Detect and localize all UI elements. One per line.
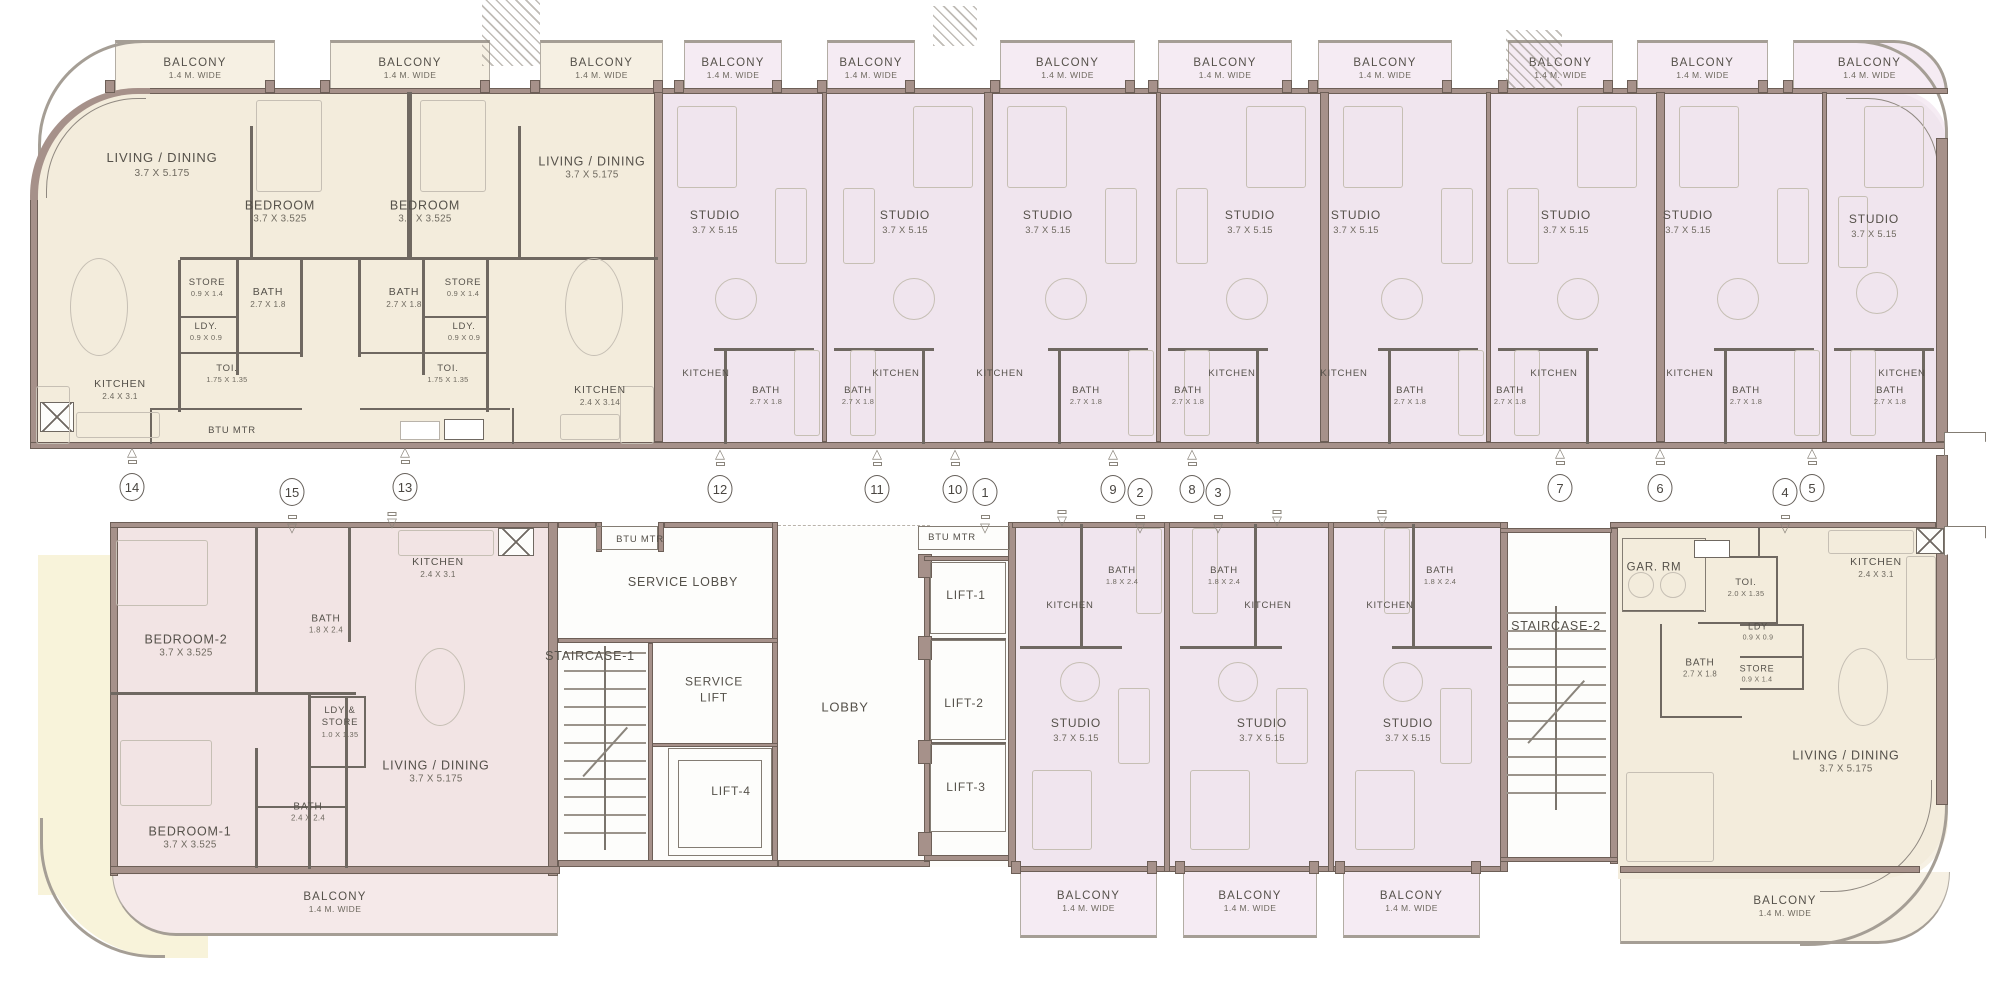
furniture-item bbox=[1032, 770, 1092, 850]
wall-segment bbox=[1008, 522, 1016, 867]
unit-marker: △ 11 ▽ bbox=[865, 475, 890, 503]
furniture-item bbox=[715, 278, 757, 320]
room-dims: 2.7 X 1.8 bbox=[386, 300, 421, 311]
room-dims: 2.4 X 3.1 bbox=[1850, 570, 1902, 581]
room-label: BATH 2.7 X 1.8 bbox=[842, 385, 874, 407]
wall-segment bbox=[1620, 866, 1920, 873]
balcony: BALCONY 1.4 M. WIDE bbox=[1158, 40, 1292, 94]
room-name: SERVICE bbox=[685, 674, 743, 690]
entry-arrow: ▽ bbox=[1271, 510, 1283, 530]
unit-number: 10 bbox=[943, 475, 968, 503]
furniture-item bbox=[1577, 106, 1637, 188]
partition-line bbox=[1758, 527, 1760, 557]
room-dims: 0.9 X 0.9 bbox=[448, 333, 480, 343]
room-name: STAIRCASE-2 bbox=[1511, 618, 1601, 634]
partition-line bbox=[152, 408, 302, 410]
room-label: LOBBY bbox=[821, 700, 868, 717]
room-label: KITCHEN 2.4 X 3.1 bbox=[1850, 556, 1902, 580]
room-name: BATH bbox=[1730, 385, 1762, 397]
room-dims: 2.7 X 1.8 bbox=[1683, 669, 1717, 679]
room-label: BATH 2.7 X 1.8 bbox=[1070, 385, 1102, 407]
railing-pier bbox=[1282, 80, 1292, 93]
room-name: LIFT-1 bbox=[946, 588, 985, 604]
wall-segment bbox=[110, 866, 560, 874]
room-label: BATH 1.8 X 2.4 bbox=[309, 612, 343, 635]
railing-pier bbox=[817, 80, 827, 93]
room-name: STUDIO bbox=[880, 208, 930, 224]
balcony-label: BALCONY 1.4 M. WIDE bbox=[331, 43, 489, 94]
door-threshold-icon bbox=[951, 462, 960, 466]
balcony-name: BALCONY bbox=[163, 57, 226, 69]
room-name: STUDIO bbox=[1331, 208, 1381, 224]
furniture-item bbox=[1850, 350, 1876, 436]
balcony-label: BALCONY 1.4 M. WIDE bbox=[1319, 43, 1451, 94]
door-threshold-icon bbox=[401, 460, 410, 464]
room-dims: 3.7 X 5.15 bbox=[1383, 732, 1433, 744]
boxed-label bbox=[400, 421, 440, 440]
railing-pier bbox=[1783, 80, 1793, 93]
wall-segment bbox=[1164, 522, 1170, 872]
partition-line bbox=[1412, 524, 1415, 646]
balcony-name: BALCONY bbox=[1218, 890, 1281, 902]
room-name: KITCHEN bbox=[682, 368, 729, 380]
room-label: BTU MTR bbox=[616, 534, 664, 546]
room-dims: 0.9 X 0.9 bbox=[190, 333, 222, 343]
room-label: LIVING / DINING 3.7 X 5.175 bbox=[107, 150, 218, 180]
room-dims: 2.7 X 1.8 bbox=[1394, 397, 1426, 407]
furniture-item bbox=[1717, 278, 1759, 320]
furniture-item bbox=[36, 386, 70, 444]
room-dims: 2.7 X 1.8 bbox=[1874, 397, 1906, 407]
furniture-item bbox=[913, 106, 973, 188]
room-dims: 1.75 X 1.35 bbox=[427, 375, 468, 385]
unit-marker: △ 10 ▽ bbox=[943, 475, 968, 503]
furniture-item bbox=[1440, 688, 1472, 764]
room-label: KITCHEN bbox=[1244, 600, 1291, 612]
room-label: STUDIO 3.7 X 5.15 bbox=[1051, 716, 1101, 744]
unit-number: 4 bbox=[1773, 478, 1798, 506]
balcony-name: BALCONY bbox=[1380, 890, 1443, 902]
room-label: BATH 2.7 X 1.8 bbox=[1874, 385, 1906, 407]
balcony-label: BALCONY 1.4 M. WIDE bbox=[541, 43, 662, 94]
room-dims: 3.7 X 5.15 bbox=[690, 224, 740, 236]
room-label: STORE 0.9 X 1.4 bbox=[445, 277, 482, 299]
room-label: LIVING / DINING 3.7 X 5.175 bbox=[538, 154, 645, 183]
entry-arrow-up-icon: △ bbox=[127, 445, 137, 458]
room-name: KITCHEN bbox=[1666, 368, 1713, 380]
room-name: STUDIO bbox=[1051, 716, 1101, 732]
room-name: LIFT-2 bbox=[944, 696, 983, 712]
room-dims: 2.4 X 3.1 bbox=[94, 392, 146, 403]
partition-line bbox=[178, 260, 181, 412]
room-label: BATH 2.7 X 1.8 bbox=[386, 286, 421, 310]
door-threshold-icon bbox=[1136, 515, 1145, 519]
wall-segment bbox=[652, 743, 778, 747]
railing-pier bbox=[905, 80, 915, 93]
balcony-name: BALCONY bbox=[303, 891, 366, 903]
door-threshold-icon bbox=[1781, 515, 1790, 519]
wall-segment bbox=[654, 92, 663, 442]
railing-pier bbox=[772, 80, 782, 93]
room-label: BTU MTR bbox=[208, 425, 256, 437]
furniture-item bbox=[1906, 556, 1936, 660]
room-label: STORE 0.9 X 1.4 bbox=[1740, 664, 1775, 685]
balcony-label: BALCONY 1.4 M. WIDE bbox=[1344, 868, 1479, 935]
room-name: TOI. bbox=[206, 363, 247, 375]
room-name: LIVING / DINING bbox=[382, 758, 489, 774]
partition-line bbox=[922, 350, 925, 444]
railing-pier bbox=[1308, 80, 1318, 93]
railing-pier bbox=[1147, 861, 1157, 874]
room-name: LDY. bbox=[448, 321, 480, 333]
room-name: KITCHEN bbox=[412, 556, 464, 570]
room-name: BATH bbox=[1106, 565, 1138, 577]
partition-line bbox=[1498, 348, 1598, 351]
room-name: LIVING / DINING bbox=[538, 154, 645, 170]
arrow-down-icon: ▽ bbox=[1377, 514, 1387, 527]
railing-pier bbox=[674, 80, 684, 93]
wall-segment bbox=[1656, 92, 1665, 442]
wall-segment bbox=[1822, 92, 1827, 442]
room-dims: 3.7 X 5.175 bbox=[107, 167, 218, 180]
wall-segment bbox=[1500, 528, 1612, 533]
partition-line bbox=[1256, 350, 1259, 444]
wall-segment bbox=[924, 855, 1014, 861]
balcony-label: BALCONY 1.4 M. WIDE bbox=[1021, 868, 1156, 935]
boxed-label bbox=[444, 419, 484, 440]
outline-box bbox=[678, 760, 762, 848]
unit-number: 3 bbox=[1206, 478, 1231, 506]
room-label: BATH 2.7 X 1.8 bbox=[750, 385, 782, 407]
railing-pier bbox=[1175, 861, 1185, 874]
room-dims: 2.7 X 1.8 bbox=[250, 300, 285, 311]
room-name: BATH bbox=[842, 385, 874, 397]
furniture-item bbox=[76, 412, 160, 438]
partition-line bbox=[308, 695, 311, 869]
entry-arrow-up-icon: △ bbox=[1108, 447, 1118, 460]
balcony-width: 1.4 M. WIDE bbox=[1676, 70, 1729, 80]
room-name: BEDROOM-1 bbox=[149, 824, 232, 840]
room-dims: 3.7 X 5.15 bbox=[1225, 224, 1275, 236]
room-label: KITCHEN bbox=[1320, 368, 1367, 380]
partition-line bbox=[1802, 624, 1804, 690]
entry-arrow-down-icon: ▽ bbox=[980, 521, 990, 534]
room-name: BATH bbox=[1070, 385, 1102, 397]
room-dims: 3.7 X 5.15 bbox=[1023, 224, 1073, 236]
unit-marker: △ 1 ▽ bbox=[973, 478, 998, 506]
wall-segment bbox=[772, 522, 778, 867]
room-name: LDY. bbox=[190, 321, 222, 333]
partition-line bbox=[364, 696, 366, 768]
hatch-area bbox=[933, 6, 977, 46]
room-label: TOI. 1.75 X 1.35 bbox=[427, 363, 468, 385]
unit-number: 15 bbox=[280, 478, 305, 506]
outline-box bbox=[930, 640, 1006, 740]
wall-segment bbox=[664, 522, 778, 528]
partition-line bbox=[1740, 656, 1804, 658]
partition-line bbox=[1254, 524, 1257, 646]
entry-arrow-up-icon: △ bbox=[950, 447, 960, 460]
staircase-steps bbox=[1506, 612, 1606, 810]
unit-marker: △ 3 ▽ bbox=[1206, 478, 1231, 506]
room-label: STUDIO 3.7 X 5.15 bbox=[1541, 208, 1591, 236]
arrow-down-icon: ▽ bbox=[1272, 514, 1282, 527]
wall-segment bbox=[648, 643, 653, 867]
unit-number: 14 bbox=[120, 473, 145, 501]
furniture-item bbox=[1626, 772, 1714, 862]
room-label: BATH 1.8 X 2.4 bbox=[1208, 565, 1240, 587]
arrow-down-icon: ▽ bbox=[387, 516, 397, 529]
partition-line bbox=[1660, 716, 1742, 718]
room-dims: 1.75 X 1.35 bbox=[206, 375, 247, 385]
partition-line bbox=[348, 527, 351, 642]
partition-line bbox=[1168, 348, 1268, 351]
room-label: BEDROOM 3.7 X 3.525 bbox=[245, 198, 315, 227]
room-label: KITCHEN bbox=[1530, 368, 1577, 380]
wall-segment bbox=[778, 860, 930, 867]
wall-segment bbox=[1012, 522, 1504, 528]
arrow-down-icon: ▽ bbox=[1057, 514, 1067, 527]
room-name: KITCHEN bbox=[1366, 600, 1413, 612]
balcony: BALCONY 1.4 M. WIDE bbox=[112, 872, 558, 936]
partition-line bbox=[1776, 556, 1778, 624]
room-label: GAR. RM bbox=[1627, 561, 1682, 576]
balcony-name: BALCONY bbox=[570, 57, 633, 69]
entry-arrow: ▽ bbox=[386, 512, 398, 532]
room-name: LOBBY bbox=[821, 700, 868, 717]
railing-pier bbox=[265, 80, 275, 93]
room-dims: 3.7 X 5.15 bbox=[1237, 732, 1287, 744]
unit-marker: △ 2 ▽ bbox=[1128, 478, 1153, 506]
entry-arrow-down-icon: ▽ bbox=[287, 521, 297, 534]
room-label: KITCHEN 2.4 X 3.1 bbox=[94, 378, 146, 402]
room-label: TOI. 1.75 X 1.35 bbox=[206, 363, 247, 385]
balcony: BALCONY 1.4 M. WIDE bbox=[540, 40, 663, 94]
balcony: BALCONY 1.4 M. WIDE bbox=[1183, 868, 1317, 938]
balcony-width: 1.4 M. WIDE bbox=[707, 70, 760, 80]
partition-line bbox=[1724, 350, 1727, 444]
furniture-item bbox=[1343, 106, 1403, 188]
door-threshold-icon bbox=[1188, 462, 1197, 466]
facade-fin bbox=[1944, 526, 1986, 556]
room-dims: 0.9 X 1.4 bbox=[189, 289, 226, 299]
entry-arrow-up-icon: △ bbox=[1187, 447, 1197, 460]
room-label: LIFT-1 bbox=[946, 588, 985, 604]
room-dims: 3.7 X 5.15 bbox=[880, 224, 930, 236]
room-label: STORE 0.9 X 1.4 bbox=[189, 277, 226, 299]
door-threshold-icon bbox=[1556, 461, 1565, 465]
partition-line bbox=[486, 260, 489, 412]
room-name: KITCHEN bbox=[872, 368, 919, 380]
wall-segment bbox=[558, 860, 778, 867]
furniture-item bbox=[1045, 278, 1087, 320]
furniture-item bbox=[120, 740, 212, 806]
door-threshold-icon bbox=[1214, 515, 1223, 519]
wall-segment bbox=[1156, 92, 1161, 442]
room-name: BTU MTR bbox=[616, 534, 664, 546]
room-name: SERVICE LOBBY bbox=[628, 574, 738, 590]
room-dims: 2.7 X 1.8 bbox=[1730, 397, 1762, 407]
room-dims: 3.7 X 5.15 bbox=[1331, 224, 1381, 236]
room-dims-extra: 1.0 X 1.35 bbox=[322, 730, 359, 740]
furniture-item bbox=[1628, 572, 1654, 598]
balcony-name: BALCONY bbox=[1671, 57, 1734, 69]
unit-number: 5 bbox=[1800, 474, 1825, 502]
room-label: KITCHEN bbox=[1046, 600, 1093, 612]
partition-line bbox=[512, 408, 514, 444]
room-name: KITCHEN bbox=[94, 378, 146, 392]
wall-segment bbox=[918, 832, 932, 856]
room-label: BEDROOM 3.7 X 3.525 bbox=[390, 198, 460, 227]
room-name: TOI. bbox=[427, 363, 468, 375]
room-dims: 2.0 X 1.35 bbox=[1728, 589, 1765, 599]
room-label: LIFT-3 bbox=[946, 780, 985, 796]
furniture-item bbox=[1557, 278, 1599, 320]
partition-line bbox=[310, 766, 366, 768]
unit-marker: △ 12 ▽ bbox=[708, 475, 733, 503]
wall-segment bbox=[984, 92, 993, 442]
partition-line bbox=[1020, 646, 1122, 649]
furniture-item bbox=[1355, 770, 1415, 850]
room-label: TOI. 2.0 X 1.35 bbox=[1728, 577, 1765, 599]
balcony: BALCONY 1.4 M. WIDE bbox=[1000, 40, 1135, 94]
room-name: KITCHEN bbox=[1878, 368, 1925, 380]
balcony: BALCONY 1.4 M. WIDE bbox=[684, 40, 782, 94]
shaft-x-box bbox=[1916, 528, 1944, 554]
room-name: BATH bbox=[1424, 565, 1456, 577]
partition-line bbox=[110, 692, 356, 695]
furniture-item bbox=[794, 350, 820, 436]
furniture-item bbox=[1458, 350, 1484, 436]
unit-marker: △ 4 ▽ bbox=[1773, 478, 1798, 506]
partition-line bbox=[300, 260, 303, 357]
unit-marker: △ 8 ▽ bbox=[1180, 475, 1205, 503]
entry-arrow-up-icon: △ bbox=[1655, 446, 1665, 459]
room-name: STUDIO bbox=[1225, 208, 1275, 224]
room-dims: 0.9 X 1.4 bbox=[445, 289, 482, 299]
room-dims: 3.7 X 3.525 bbox=[145, 648, 228, 661]
furniture-item bbox=[1381, 278, 1423, 320]
furniture-item bbox=[1838, 648, 1888, 726]
door-threshold-icon bbox=[1656, 461, 1665, 465]
door-threshold-icon bbox=[716, 462, 725, 466]
balcony-width: 1.4 M. WIDE bbox=[1041, 70, 1094, 80]
partition-line bbox=[178, 316, 239, 318]
room-label: BATH 2.7 X 1.8 bbox=[1730, 385, 1762, 407]
room-name: STORE bbox=[189, 277, 226, 289]
room-dims: 3.7 X 5.175 bbox=[1792, 764, 1899, 777]
room-name: GAR. RM bbox=[1627, 561, 1682, 576]
room-dims: LIFT bbox=[685, 690, 743, 706]
balcony-label: BALCONY 1.4 M. WIDE bbox=[828, 43, 914, 94]
balcony-label: BALCONY 1.4 M. WIDE bbox=[1159, 43, 1291, 94]
railing-pier bbox=[653, 80, 663, 93]
unit-number: 1 bbox=[973, 478, 998, 506]
unit-marker: △ 7 ▽ bbox=[1548, 474, 1573, 502]
room-label: STUDIO 3.7 X 5.15 bbox=[1383, 716, 1433, 744]
room-label: KITCHEN bbox=[1878, 368, 1925, 380]
room-label: BEDROOM-1 3.7 X 3.525 bbox=[149, 824, 232, 853]
hatch-area bbox=[1506, 30, 1562, 90]
room-name: BATH bbox=[309, 612, 343, 625]
room-label: BATH 2.7 X 1.8 bbox=[1172, 385, 1204, 407]
unit-number: 9 bbox=[1101, 475, 1126, 503]
room-label: SERVICE LOBBY bbox=[628, 574, 738, 590]
wall-segment bbox=[1936, 138, 1948, 442]
balcony-name: BALCONY bbox=[701, 57, 764, 69]
room-label: BATH 2.4 X 2.4 bbox=[291, 800, 325, 823]
partition-line bbox=[358, 260, 361, 357]
railing-pier bbox=[1442, 80, 1452, 93]
entry-arrow-down-icon: ▽ bbox=[1780, 521, 1790, 534]
partition-line bbox=[1922, 350, 1925, 442]
room-label: KITCHEN bbox=[1208, 368, 1255, 380]
furniture-item bbox=[1118, 688, 1150, 764]
room-name: BATH bbox=[291, 800, 325, 813]
furniture-item bbox=[1864, 106, 1924, 188]
balcony-width: 1.4 M. WIDE bbox=[384, 70, 437, 80]
furniture-item bbox=[560, 414, 620, 440]
room-name: LIVING / DINING bbox=[1792, 748, 1899, 764]
door-threshold-icon bbox=[288, 515, 297, 519]
furniture-item bbox=[1176, 188, 1208, 264]
room-name: LDY & bbox=[322, 705, 359, 717]
boxed-label bbox=[1694, 540, 1730, 558]
partition-line bbox=[255, 748, 258, 868]
partition-line bbox=[407, 92, 412, 260]
room-label: STUDIO 3.7 X 5.15 bbox=[1225, 208, 1275, 236]
furniture-item bbox=[70, 258, 128, 356]
floor-plan: BALCONY 1.4 M. WIDE BALCONY 1.4 M. WIDE … bbox=[0, 0, 2000, 985]
balcony-label: BALCONY 1.4 M. WIDE bbox=[1638, 43, 1767, 94]
room-label: BATH 2.7 X 1.8 bbox=[1494, 385, 1526, 407]
wall-segment bbox=[110, 522, 558, 528]
balcony-width: 1.4 M. WIDE bbox=[1359, 70, 1412, 80]
partition-line bbox=[178, 352, 303, 354]
wall-segment bbox=[558, 638, 778, 643]
balcony-name: BALCONY bbox=[1193, 57, 1256, 69]
room-label: LIVING / DINING 3.7 X 5.175 bbox=[382, 758, 489, 787]
partition-line bbox=[1660, 624, 1662, 718]
railing-pier bbox=[1335, 861, 1345, 874]
entry-arrow: ▽ bbox=[1376, 510, 1388, 530]
room-label: BEDROOM-2 3.7 X 3.525 bbox=[145, 632, 228, 661]
railing-pier bbox=[1471, 861, 1481, 874]
entry-arrow-up-icon: △ bbox=[400, 445, 410, 458]
room-label: STUDIO 3.7 X 5.15 bbox=[1331, 208, 1381, 236]
furniture-item bbox=[1507, 188, 1539, 264]
room-label: KITCHEN bbox=[1666, 368, 1713, 380]
balcony-width: 1.4 M. WIDE bbox=[1062, 903, 1115, 913]
room-name: STAIRCASE-1 bbox=[545, 648, 635, 664]
room-label: BATH 1.8 X 2.4 bbox=[1106, 565, 1138, 587]
room-name: KITCHEN bbox=[1208, 368, 1255, 380]
unit-number: 8 bbox=[1180, 475, 1205, 503]
unit-marker: △ 15 ▽ bbox=[280, 478, 305, 506]
balcony-label: BALCONY 1.4 M. WIDE bbox=[685, 43, 781, 94]
room-name: BATH bbox=[1394, 385, 1426, 397]
balcony-width: 1.4 M. WIDE bbox=[1385, 903, 1438, 913]
balcony-name: BALCONY bbox=[1036, 57, 1099, 69]
shaft-x-box bbox=[498, 528, 534, 556]
room-dims: 0.9 X 0.9 bbox=[1743, 633, 1774, 642]
wall-segment bbox=[822, 92, 827, 442]
partition-line bbox=[1392, 646, 1492, 649]
room-dims: 1.8 X 2.4 bbox=[1106, 577, 1138, 587]
balcony-name: BALCONY bbox=[1057, 890, 1120, 902]
wall-segment bbox=[924, 556, 1014, 561]
railing-pier bbox=[105, 80, 115, 93]
